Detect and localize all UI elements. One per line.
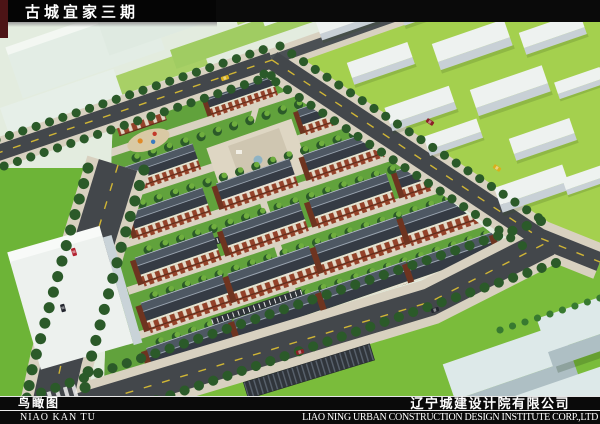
top-bar-shadow bbox=[0, 22, 217, 27]
footer-bar: 鸟瞰图 辽宁城建设计院有限公司 NIAO KAN TU LIAO NING UR… bbox=[0, 396, 600, 424]
aerial-rendering bbox=[0, 0, 600, 424]
company-name-en: LIAO NING URBAN CONSTRUCTION DESIGN INST… bbox=[302, 411, 598, 424]
caption-en: NIAO KAN TU bbox=[20, 411, 96, 424]
project-title: 古城宜家三期 bbox=[25, 1, 139, 22]
company-name-zh: 辽宁城建设计院有限公司 bbox=[410, 397, 570, 410]
caption-zh: 鸟瞰图 bbox=[18, 397, 60, 410]
title-accent-bar bbox=[0, 0, 8, 38]
title-banner: 古城宜家三期 bbox=[8, 0, 216, 22]
